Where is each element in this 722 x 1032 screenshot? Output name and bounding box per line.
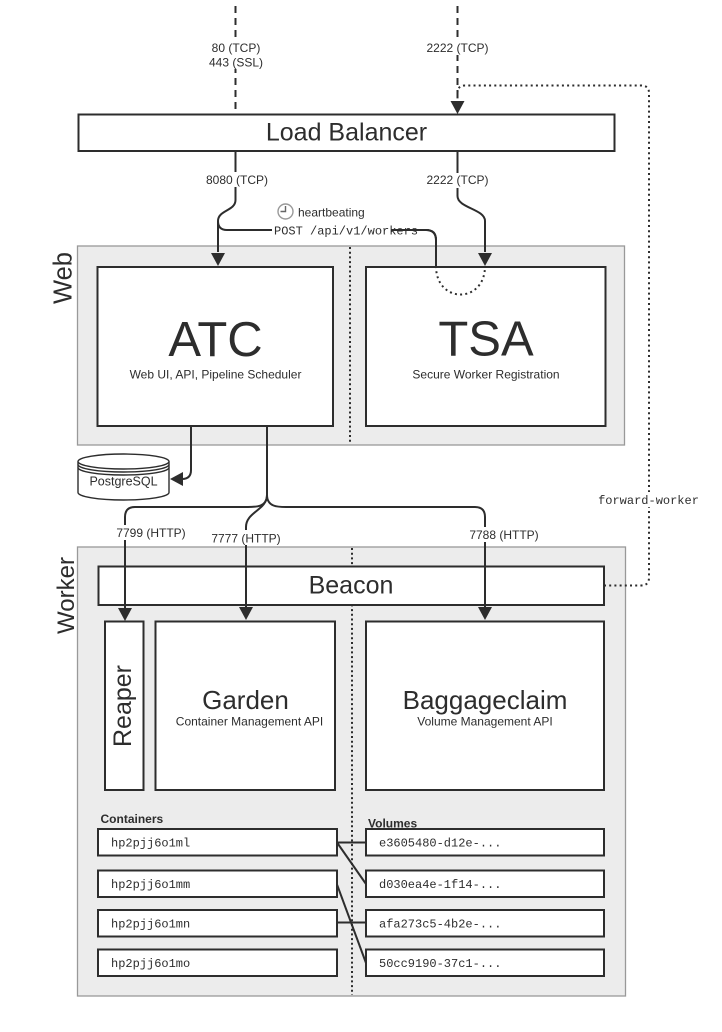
svg-text:Volume Management API: Volume Management API: [417, 715, 552, 729]
svg-text:Web: Web: [50, 252, 78, 304]
svg-text:8080 (TCP): 8080 (TCP): [206, 173, 268, 187]
svg-text:POST /api/v1/workers: POST /api/v1/workers: [274, 225, 418, 239]
svg-text:PostgreSQL: PostgreSQL: [89, 475, 157, 489]
svg-text:7788 (HTTP): 7788 (HTTP): [469, 528, 538, 542]
svg-text:50cc9190-37c1-...: 50cc9190-37c1-...: [379, 957, 501, 971]
svg-text:ATC: ATC: [168, 313, 262, 367]
svg-text:hp2pjj6o1ml: hp2pjj6o1ml: [111, 837, 190, 851]
svg-text:7799 (HTTP): 7799 (HTTP): [116, 526, 185, 540]
svg-text:2222 (TCP): 2222 (TCP): [426, 173, 488, 187]
svg-text:Load Balancer: Load Balancer: [266, 119, 427, 147]
svg-text:Beacon: Beacon: [309, 572, 394, 600]
svg-text:80 (TCP): 80 (TCP): [212, 41, 261, 55]
svg-text:heartbeating: heartbeating: [298, 206, 365, 220]
svg-text:443 (SSL): 443 (SSL): [209, 56, 263, 70]
svg-text:2222 (TCP): 2222 (TCP): [426, 41, 488, 55]
svg-text:TSA: TSA: [438, 313, 534, 367]
svg-text:Containers: Containers: [101, 812, 164, 826]
svg-text:Worker: Worker: [53, 557, 80, 634]
svg-text:hp2pjj6o1mo: hp2pjj6o1mo: [111, 957, 190, 971]
svg-text:Container Management API: Container Management API: [176, 715, 323, 729]
svg-text:d030ea4e-1f14-...: d030ea4e-1f14-...: [379, 878, 501, 892]
svg-text:Baggageclaim: Baggageclaim: [403, 685, 568, 715]
svg-text:hp2pjj6o1mn: hp2pjj6o1mn: [111, 918, 190, 932]
svg-text:7777 (HTTP): 7777 (HTTP): [211, 532, 280, 546]
svg-text:Secure Worker Registration: Secure Worker Registration: [412, 368, 559, 382]
svg-text:afa273c5-4b2e-...: afa273c5-4b2e-...: [379, 918, 501, 932]
svg-text:Garden: Garden: [202, 685, 289, 715]
svg-text:Web UI, API, Pipeline Schedule: Web UI, API, Pipeline Scheduler: [130, 368, 302, 382]
svg-text:e3605480-d12e-...: e3605480-d12e-...: [379, 837, 501, 851]
svg-text:Reaper: Reaper: [109, 665, 137, 747]
svg-text:forward-worker: forward-worker: [598, 494, 699, 508]
svg-text:hp2pjj6o1mm: hp2pjj6o1mm: [111, 878, 190, 892]
